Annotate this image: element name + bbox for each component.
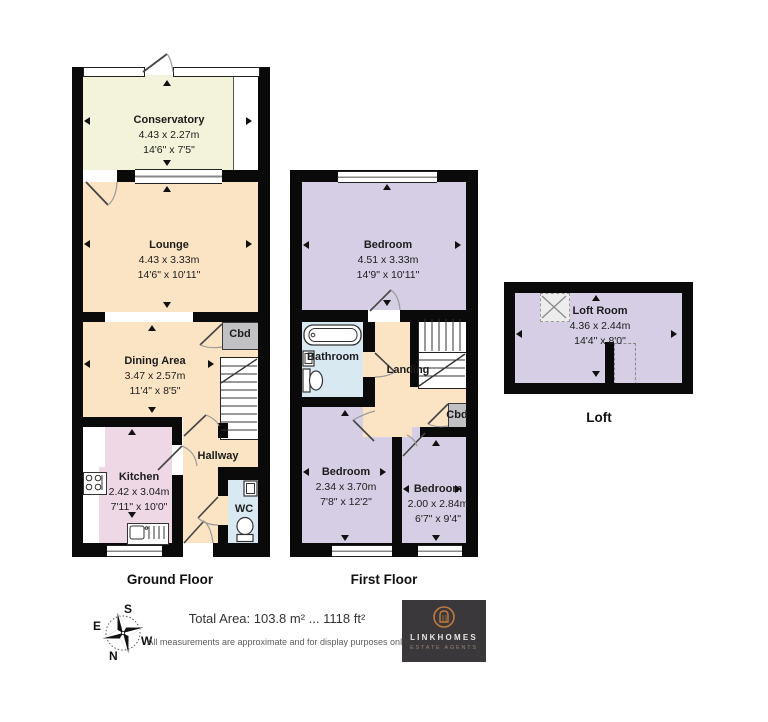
room-label-loftroom: Loft Room 4.36 x 2.44m 14'4" x 8'0" [570, 304, 631, 349]
total-area-text: Total Area: 103.8 m² ... 1118 ft² [189, 611, 366, 626]
wall [218, 480, 228, 496]
measure-arrow-down [128, 512, 136, 518]
measure-arrow-up [128, 429, 136, 435]
wall [290, 170, 302, 557]
room-landing [375, 397, 402, 437]
skylight-icon [540, 293, 570, 322]
measure-arrow-left [303, 468, 309, 476]
measure-arrow-down [432, 535, 440, 541]
measure-arrow-down [148, 407, 156, 413]
wall [193, 312, 270, 322]
staircase-first-upper [418, 318, 468, 354]
measure-arrow-up [163, 80, 171, 86]
front-door-opening [183, 543, 213, 557]
disclaimer-text: All measurements are approximate and for… [147, 637, 406, 647]
wall [117, 170, 135, 182]
measure-arrow-down [163, 160, 171, 166]
measure-arrow-left [84, 360, 90, 368]
measure-arrow-right [455, 241, 461, 249]
wall [218, 525, 228, 543]
window [332, 545, 392, 557]
window [135, 169, 222, 184]
measure-arrow-right [208, 360, 214, 368]
wall [392, 437, 402, 543]
wall [504, 282, 515, 394]
measure-arrow-up [432, 440, 440, 446]
window [338, 171, 437, 183]
room-label-hallway: Hallway [198, 449, 239, 464]
measure-arrow-up [341, 410, 349, 416]
measure-arrow-down [383, 300, 391, 306]
wall [363, 322, 375, 352]
measure-arrow-up [592, 295, 600, 301]
wall [72, 543, 270, 557]
loft-hatch-outline [614, 343, 636, 385]
wall [218, 467, 258, 480]
compass-east: E [93, 619, 101, 633]
measure-arrow-up [163, 186, 171, 192]
room-label-conservatory: Conservatory 4.43 x 2.27m 14'6" x 7'5" [134, 113, 205, 158]
ground-floor-label: Ground Floor [127, 572, 213, 587]
logo-name: LINKHOMES [402, 633, 486, 642]
wall [682, 282, 693, 394]
measure-arrow-up [148, 325, 156, 331]
room-label-cbd-first: Cbd [446, 408, 467, 423]
measure-arrow-down [341, 535, 349, 541]
window [418, 545, 462, 557]
measure-arrow-right [380, 468, 386, 476]
logo-tagline: ESTATE AGENTS [402, 645, 486, 651]
room-label-bedroom2: Bedroom 2.34 x 3.70m 7'8" x 12'2" [316, 465, 377, 510]
hob-icon [83, 472, 107, 495]
room-label-bedroom1: Bedroom 4.51 x 3.33m 14'9" x 10'11" [357, 238, 420, 283]
measure-arrow-right [246, 240, 252, 248]
room-label-wc: WC [235, 502, 253, 517]
measure-arrow-right [671, 330, 677, 338]
door-leaf [143, 54, 167, 72]
wall [363, 377, 375, 397]
room-kitchen [105, 427, 172, 472]
compass-south: S [124, 602, 132, 616]
room-label-cbd-ground: Cbd [229, 327, 250, 342]
estate-agent-logo: LINKHOMES ESTATE AGENTS [402, 600, 486, 662]
room-label-bathroom: Bathroom [307, 350, 359, 365]
wall [302, 310, 368, 322]
wall [222, 170, 258, 182]
measure-arrow-left [303, 241, 309, 249]
window [107, 545, 162, 557]
wall [72, 312, 105, 322]
wall [72, 417, 182, 427]
measure-arrow-left [84, 240, 90, 248]
compass-rose-icon [97, 607, 148, 658]
measure-arrow-left [84, 117, 90, 125]
first-floor-label: First Floor [351, 572, 418, 587]
wall [172, 427, 182, 445]
measure-arrow-right [246, 117, 252, 125]
room-label-landing: Landing [387, 363, 430, 378]
measure-arrow-left [516, 330, 522, 338]
wall [504, 282, 693, 293]
wall [420, 427, 466, 437]
conservatory-glass-wall [173, 67, 260, 77]
measure-arrow-left [403, 485, 409, 493]
measure-arrow-down [163, 302, 171, 308]
wall [504, 383, 693, 394]
wall [302, 397, 375, 407]
measure-arrow-up [383, 184, 391, 190]
floorplan-canvas: Conservatory 4.43 x 2.27m 14'6" x 7'5" L… [0, 0, 768, 722]
room-label-kitchen: Kitchen 2.42 x 3.04m 7'11" x 10'0" [109, 470, 170, 515]
kitchen-sink-icon [127, 523, 169, 545]
measure-arrow-right [455, 485, 461, 493]
conservatory-glass-wall [83, 67, 145, 77]
compass-north: N [109, 649, 118, 663]
wall [172, 475, 183, 543]
wall [218, 423, 228, 438]
room-label-dining: Dining Area 3.47 x 2.57m 11'4" x 8'5" [124, 354, 185, 399]
logo-house-icon [402, 602, 486, 634]
loft-label: Loft [586, 410, 611, 425]
measure-arrow-down [592, 371, 600, 377]
room-label-lounge: Lounge 4.43 x 3.33m 14'6" x 10'11" [138, 238, 201, 283]
